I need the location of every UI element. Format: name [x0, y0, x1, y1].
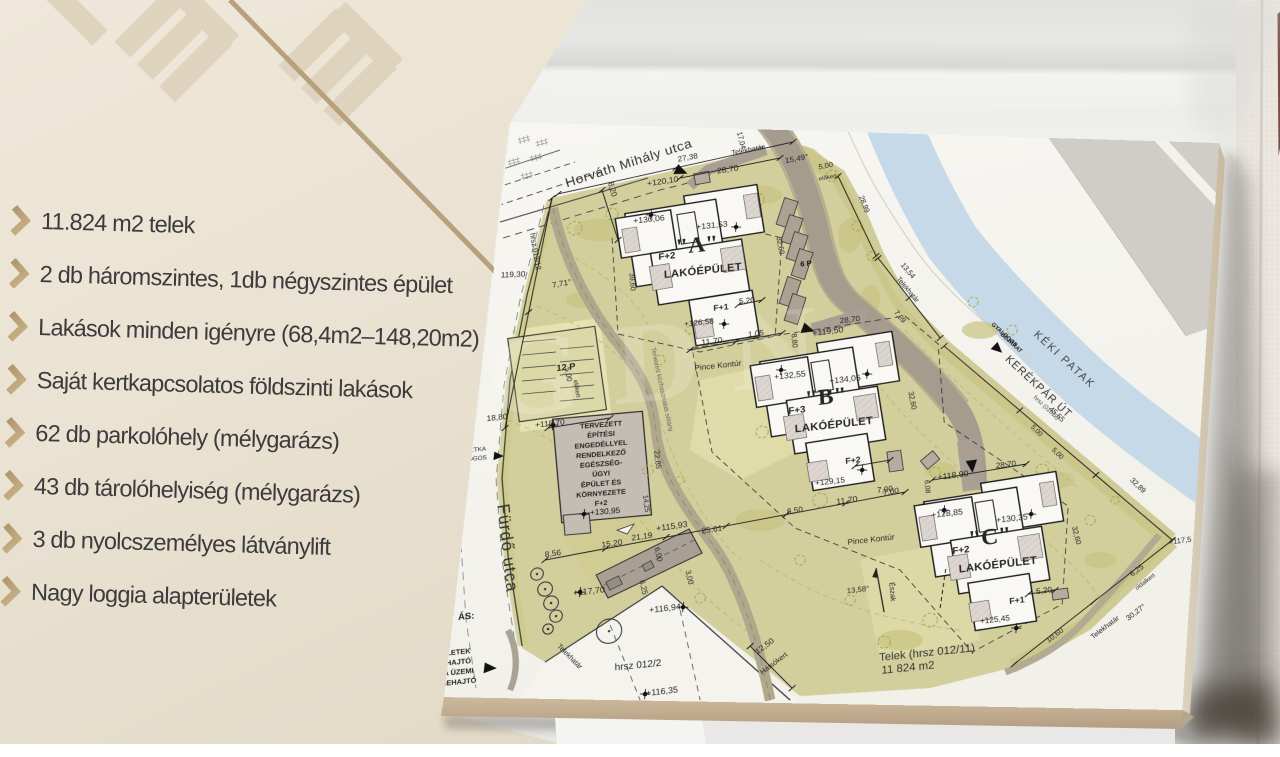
- svg-text:F+2: F+2: [952, 543, 970, 556]
- svg-text:"A": "A": [675, 230, 719, 259]
- svg-text:"C": "C": [967, 522, 1012, 552]
- svg-text:"B": "B": [804, 382, 847, 411]
- svg-text:F+1: F+1: [713, 301, 729, 312]
- svg-text:6 P: 6 P: [800, 259, 812, 269]
- svg-text:39,60: 39,60: [627, 272, 638, 291]
- svg-text:8,80: 8,80: [789, 333, 799, 348]
- svg-text:6,08: 6,08: [922, 480, 931, 495]
- svg-text:ÁS:: ÁS:: [458, 610, 474, 622]
- svg-text:F+3: F+3: [788, 403, 806, 416]
- svg-text:F+2: F+2: [845, 454, 861, 466]
- svg-text:119,30: 119,30: [501, 270, 527, 280]
- svg-text:F+1: F+1: [1009, 594, 1025, 606]
- svg-text:F+2: F+2: [658, 249, 675, 261]
